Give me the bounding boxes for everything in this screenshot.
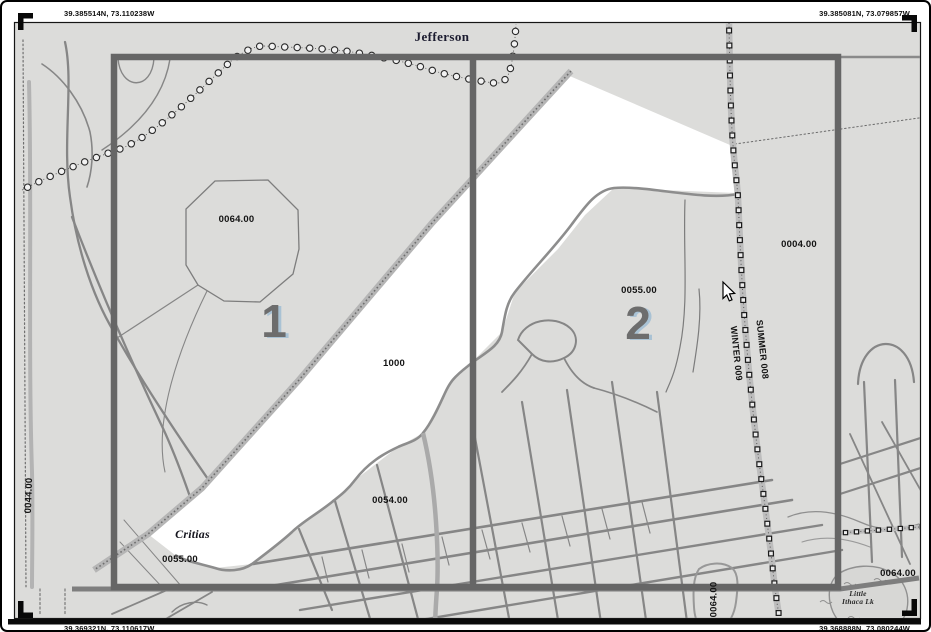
grid-cell-1-number[interactable]: 1 bbox=[250, 298, 298, 344]
coordinate-top-left: 39.385514N, 73.110238W bbox=[64, 9, 154, 18]
lake-label-line2: Ithaca Lk bbox=[820, 598, 896, 606]
map-canvas[interactable] bbox=[2, 2, 931, 632]
parcel-label-0055-cell2: 0055.00 bbox=[599, 285, 679, 296]
parcel-label-0055-sw: 0055.00 bbox=[140, 554, 220, 565]
town-label-critias: Critias bbox=[150, 529, 235, 540]
parcel-label-0004: 0004.00 bbox=[759, 239, 839, 250]
parcel-label-0054: 0054.00 bbox=[350, 495, 430, 506]
parcel-label-octagon: 0064.00 bbox=[194, 214, 279, 225]
coordinate-bottom-right: 39.368888N, 73.080244W bbox=[642, 624, 910, 632]
parcel-label-0064-se: 0064.00 bbox=[858, 568, 931, 579]
parcel-label-0064-bottom: 0064.00 bbox=[709, 560, 720, 632]
grid-cell-2-number[interactable]: 2 bbox=[614, 300, 662, 346]
lake-label: Little Ithaca Lk bbox=[820, 590, 896, 606]
town-label-jefferson: Jefferson bbox=[387, 31, 497, 42]
coordinate-top-right: 39.385081N, 73.079857W bbox=[642, 9, 910, 18]
coordinate-bottom-left: 39.369321N, 73.110617W bbox=[64, 624, 154, 632]
parcel-label-1000: 1000 bbox=[364, 358, 424, 369]
map-window: 39.385514N, 73.110238W 39.385081N, 73.07… bbox=[0, 0, 931, 632]
